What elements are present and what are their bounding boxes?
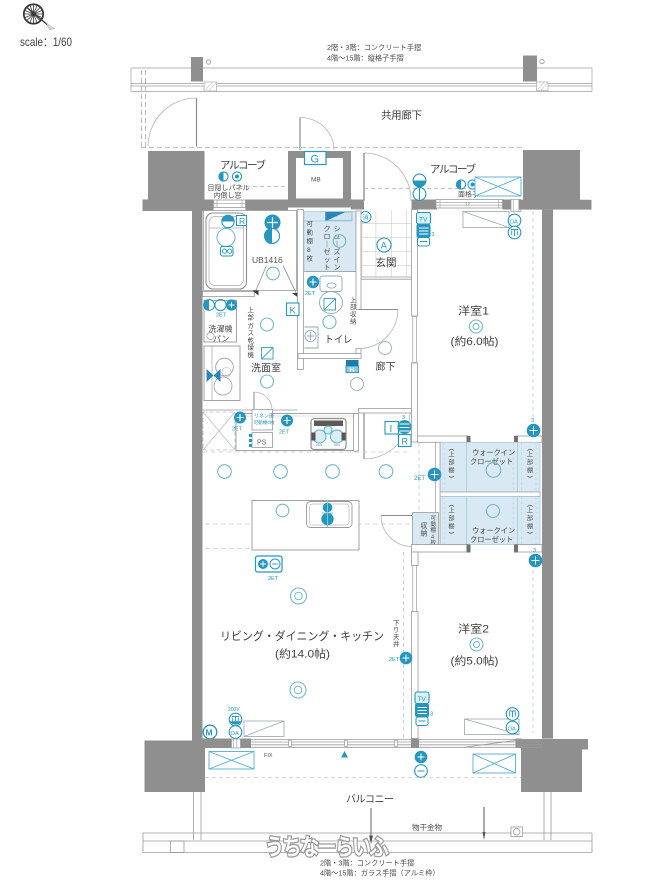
svg-text:共用廊下: 共用廊下 xyxy=(381,109,422,122)
svg-text:PS: PS xyxy=(257,440,267,447)
svg-text:3: 3 xyxy=(430,712,433,718)
svg-text:2ET: 2ET xyxy=(232,427,243,433)
svg-text:目隠しパネル: 目隠しパネル xyxy=(208,183,250,192)
svg-text:OA: OA xyxy=(231,731,240,737)
svg-text:TV: TV xyxy=(419,217,428,224)
svg-text:4階～15階：縦格子手摺: 4階～15階：縦格子手摺 xyxy=(327,54,404,63)
svg-text:洗濯機: 洗濯機 xyxy=(209,324,233,334)
svg-text:OA: OA xyxy=(508,727,517,733)
svg-text:シュ｜ズイン: シュ｜ズイン xyxy=(334,226,341,272)
svg-text:廊下: 廊下 xyxy=(376,360,396,373)
svg-text:うちなーらいふ: うちなーらいふ xyxy=(265,835,389,860)
svg-text:scale：1/60: scale：1/60 xyxy=(20,35,72,49)
svg-text:A: A xyxy=(381,241,387,251)
svg-text:R: R xyxy=(402,437,409,447)
svg-text:可動棚4枚: 可動棚4枚 xyxy=(431,515,437,546)
svg-text:3: 3 xyxy=(432,232,435,238)
svg-text:リネン庫: リネン庫 xyxy=(254,413,274,420)
svg-text:クロ｜ゼット: クロ｜ゼット xyxy=(324,225,331,272)
svg-text:ウォークイン: ウォークイン xyxy=(472,448,515,457)
svg-text:消: 消 xyxy=(363,214,369,222)
svg-text:2階・3階：コンクリート手摺: 2階・3階：コンクリート手摺 xyxy=(320,859,414,868)
svg-text:3: 3 xyxy=(531,418,534,424)
svg-text:FIX: FIX xyxy=(264,753,273,759)
svg-text:上部収納: 上部収納 xyxy=(350,295,357,326)
svg-text:(約5.0帖): (約5.0帖) xyxy=(451,654,499,668)
svg-text:2ET: 2ET xyxy=(268,576,279,582)
svg-text:TV: TV xyxy=(418,696,427,703)
svg-text:ウォークイン: ウォークイン xyxy=(472,526,515,535)
svg-text:2階・3階：コンクリート手摺: 2階・3階：コンクリート手摺 xyxy=(327,43,421,52)
svg-text:(約6.0帖): (約6.0帖) xyxy=(451,334,499,348)
svg-text:クローゼット: クローゼット xyxy=(470,535,513,544)
svg-text:I: I xyxy=(390,424,393,435)
svg-text:玄関: 玄関 xyxy=(376,256,397,269)
svg-text:上部棚: 上部棚 xyxy=(448,451,454,475)
svg-text:G: G xyxy=(311,154,320,166)
svg-text:4階～15階：ガラス手摺（アルミ枠）: 4階～15階：ガラス手摺（アルミ枠） xyxy=(320,869,440,878)
svg-text:クローゼット: クローゼット xyxy=(470,457,513,466)
svg-text:2ET: 2ET xyxy=(305,291,316,297)
svg-text:OA: OA xyxy=(510,220,519,226)
svg-text:可動棚4枚: 可動棚4枚 xyxy=(254,419,275,426)
svg-text:アルコーブ: アルコーブ xyxy=(430,163,477,176)
svg-text:3: 3 xyxy=(402,415,405,421)
svg-text:洗面室: 洗面室 xyxy=(251,362,281,375)
svg-text:内倒し窓: 内倒し窓 xyxy=(214,191,242,200)
svg-text:200V: 200V xyxy=(228,707,240,713)
svg-text:R: R xyxy=(239,216,245,226)
svg-text:3: 3 xyxy=(533,548,536,554)
svg-text:上部ガス乾燥機: 上部ガス乾燥機 xyxy=(248,305,255,359)
svg-text:2ET: 2ET xyxy=(216,313,227,319)
svg-text:上部棚: 上部棚 xyxy=(527,507,533,531)
svg-text:可動棚8枚: 可動棚8枚 xyxy=(307,220,314,262)
svg-text:物干金物: 物干金物 xyxy=(412,822,442,832)
svg-text:トイレ: トイレ xyxy=(325,335,353,346)
svg-text:洋室2: 洋室2 xyxy=(458,622,489,636)
svg-text:(約14.0帖): (約14.0帖) xyxy=(275,647,330,661)
svg-text:2ET: 2ET xyxy=(389,657,400,663)
svg-text:アルコーブ: アルコーブ xyxy=(220,159,267,172)
svg-text:2ET: 2ET xyxy=(414,476,425,482)
svg-text:下り天井: 下り天井 xyxy=(393,619,400,648)
svg-text:収納: 収納 xyxy=(421,522,428,538)
svg-text:洋室1: 洋室1 xyxy=(458,304,489,318)
svg-text:リビング・ダイニング・キッチン: リビング・ダイニング・キッチン xyxy=(220,629,384,643)
svg-text:バルコニー: バルコニー xyxy=(346,794,394,806)
svg-text:上部棚: 上部棚 xyxy=(448,507,454,531)
svg-text:K: K xyxy=(290,306,297,317)
svg-text:MB: MB xyxy=(311,177,321,184)
svg-text:H: H xyxy=(350,367,355,374)
svg-text:パン: パン xyxy=(213,335,229,344)
svg-text:M: M xyxy=(206,728,213,738)
svg-text:上部棚: 上部棚 xyxy=(527,451,533,475)
svg-text:UB1416: UB1416 xyxy=(252,255,283,265)
svg-text:2ET: 2ET xyxy=(279,430,290,436)
